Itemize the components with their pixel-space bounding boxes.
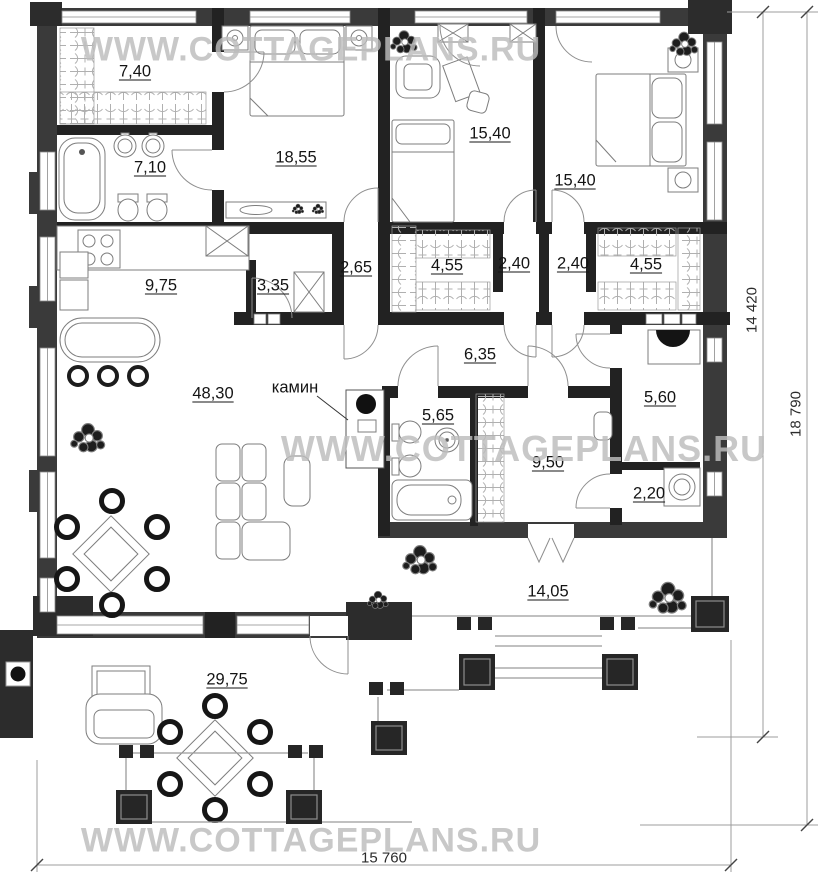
hall-cabinet xyxy=(294,272,324,312)
area-label-lobby-middle: 2,40 xyxy=(498,255,530,274)
area-label-hall: 3,35 xyxy=(257,277,289,296)
dimension-inner-height: 14 420 xyxy=(744,287,761,333)
area-label-bedroom-middle: 15,40 xyxy=(469,125,510,144)
area-label-kitchen: 9,75 xyxy=(145,277,177,296)
watermark-text: WWW.COTTAGEPLANS.RU xyxy=(81,31,541,70)
fireplace-leader-line xyxy=(317,396,348,420)
watermark-text: WWW.COTTAGEPLANS.RU xyxy=(81,822,541,861)
area-label-corridor: 6,35 xyxy=(464,346,496,365)
area-label-living-room: 48,30 xyxy=(192,385,233,404)
kitchen-fixtures xyxy=(57,226,249,385)
area-label-lobby-right: 2,40 xyxy=(557,255,589,274)
area-label-bathroom-top: 7,10 xyxy=(134,159,166,178)
floor-plan-page: 7,40 7,10 18,55 15,40 15,40 9,75 3,35 2,… xyxy=(0,0,828,889)
area-label-closet-right: 4,55 xyxy=(630,256,662,275)
area-label-terrace-back: 14,05 xyxy=(527,583,568,602)
area-label-bedroom-right: 15,40 xyxy=(554,172,595,191)
area-label-bedroom-left: 18,55 xyxy=(275,149,316,168)
wc-fixtures xyxy=(664,468,700,506)
watermark-text: WWW.COTTAGEPLANS.RU xyxy=(281,428,767,470)
bedroom-right-furniture xyxy=(596,32,698,192)
dimension-total-height: 18 790 xyxy=(788,391,805,437)
fireplace-label: камин xyxy=(272,379,318,398)
area-label-wc: 2,20 xyxy=(633,485,665,504)
area-label-utility: 5,60 xyxy=(644,389,676,408)
area-label-bathroom-main: 5,65 xyxy=(422,407,454,426)
terrace-back-plants xyxy=(403,546,686,613)
area-label-terrace-front: 29,75 xyxy=(206,671,247,690)
utility-room-fixtures xyxy=(648,330,700,364)
area-label-lobby-left: 2,65 xyxy=(340,259,372,278)
area-label-closet-left: 4,55 xyxy=(431,257,463,276)
